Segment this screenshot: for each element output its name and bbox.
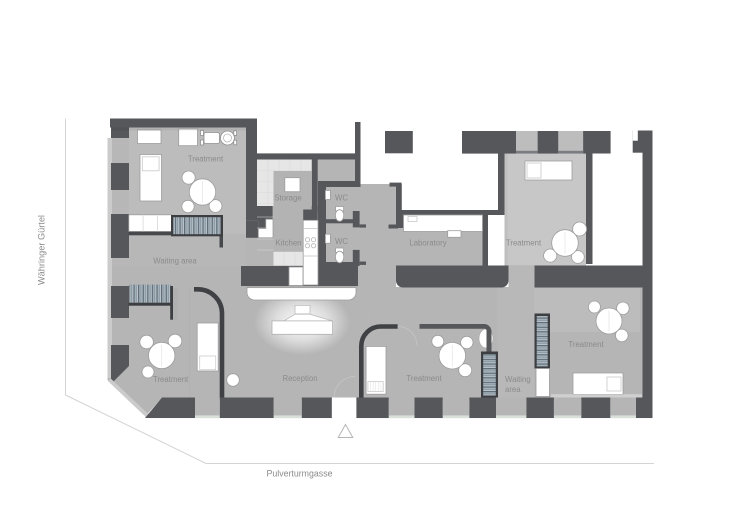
svg-text:area: area	[505, 385, 521, 394]
svg-text:WC: WC	[335, 194, 348, 203]
svg-text:Reception: Reception	[282, 374, 317, 383]
svg-text:WC: WC	[335, 237, 348, 246]
svg-text:Storage: Storage	[274, 194, 301, 203]
svg-text:Währinger Gürtel: Währinger Gürtel	[37, 215, 47, 285]
svg-text:Treatment: Treatment	[153, 375, 189, 384]
svg-text:Waiting area: Waiting area	[153, 257, 197, 266]
svg-text:Laboratory: Laboratory	[409, 239, 446, 248]
svg-text:Treatment: Treatment	[506, 239, 542, 248]
svg-text:Pulverturmgasse: Pulverturmgasse	[266, 469, 332, 479]
svg-text:Treatment: Treatment	[568, 340, 604, 349]
svg-text:Treatment: Treatment	[188, 155, 224, 164]
svg-text:Treatment: Treatment	[406, 374, 442, 383]
svg-text:Waiting: Waiting	[505, 375, 531, 384]
svg-text:Kitchen: Kitchen	[275, 238, 301, 247]
